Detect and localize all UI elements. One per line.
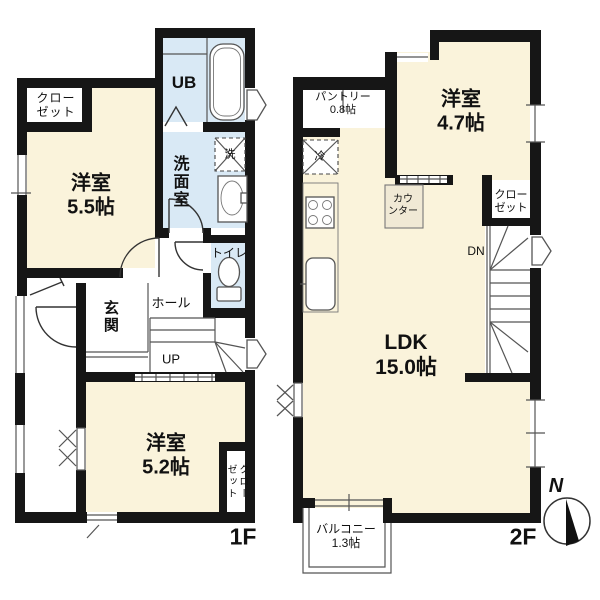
vent-icon-stairs1f <box>247 340 266 368</box>
washbasin-icon <box>218 176 247 222</box>
ub-label: UB <box>172 73 197 93</box>
balcony-label: バルコニー1.3帖 <box>316 522 376 550</box>
floor2-label: 2F <box>510 523 537 550</box>
compass-north-label: N <box>549 475 563 499</box>
floorplan-graphics <box>0 0 600 600</box>
stove-icon <box>306 197 334 228</box>
stairs-dn-label: DN <box>467 244 484 258</box>
bathtub-icon <box>210 44 244 120</box>
floorplan: クローゼット 洋室5.5帖 UB 洗面室 洗 トイレ 玄関 ホール UP 洋室5… <box>0 0 600 600</box>
fridge-label: 冷 <box>315 151 326 164</box>
lattice-window-icon <box>59 430 76 466</box>
bedroom55-label: 洋室5.5帖 <box>67 172 115 219</box>
lattice-window-icon-2f <box>277 385 293 416</box>
closet-lower-label: クローゼット <box>224 464 248 500</box>
floor1-label: 1F <box>230 523 257 550</box>
vent-icon-ub <box>247 90 266 120</box>
washroom-label: 洗面室 <box>169 155 188 209</box>
counter-label: カウンター <box>388 194 418 218</box>
hall-label: ホール <box>151 295 190 310</box>
bedroom47-label: 洋室4.7帖 <box>437 88 485 135</box>
closet-2f-label: クローゼット <box>495 189 528 215</box>
entrance-label: 玄関 <box>101 300 119 334</box>
closet-upper-label: クローゼット <box>36 91 75 119</box>
washer-label: 洗 <box>225 149 236 162</box>
toilet-label: トイレ <box>211 246 247 260</box>
toilet-icon <box>217 258 241 302</box>
pantry-label: パントリー0.8帖 <box>315 91 371 117</box>
stairs-up-label: UP <box>162 351 180 366</box>
vent-icon-stairs2f <box>532 237 551 265</box>
bedroom52-label: 洋室5.2帖 <box>142 432 190 479</box>
compass-icon <box>544 498 590 546</box>
ldk-label: LDK15.0帖 <box>375 331 437 381</box>
entrance-door-icon <box>30 278 64 295</box>
